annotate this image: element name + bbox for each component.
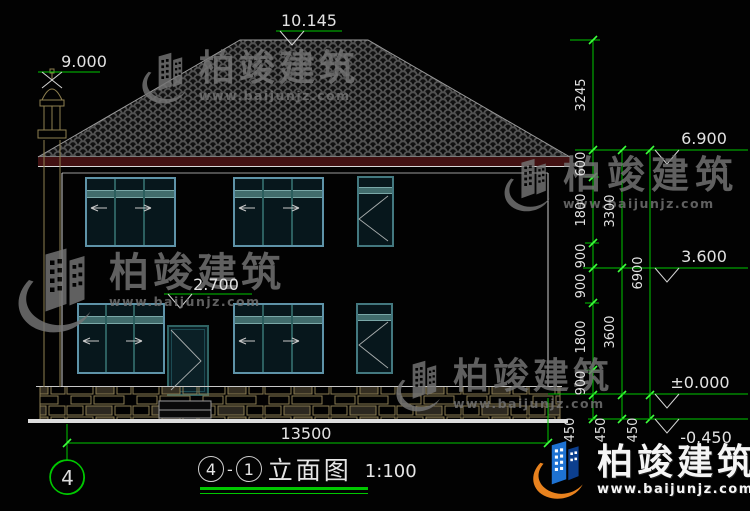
building-logo-icon <box>8 244 104 340</box>
level-eave: 6.900 <box>664 131 744 147</box>
window-transom <box>358 314 391 321</box>
window-2f-middle <box>233 177 324 247</box>
window-transom <box>235 190 322 198</box>
roof-fascia-band <box>38 156 570 167</box>
level-floor2: 3.600 <box>664 249 744 265</box>
window-1f-narrow <box>356 303 393 374</box>
title-dash: - <box>227 460 233 479</box>
building-logo-icon <box>526 438 592 504</box>
dim-label: 450 <box>594 400 608 460</box>
window-2f-narrow <box>357 176 394 247</box>
dim-total-width: 13500 <box>276 426 336 442</box>
brand-url: www.baijunjz.com <box>597 482 750 497</box>
dim-label: 450 <box>626 400 640 460</box>
dim-label: 450 <box>563 400 577 460</box>
grid-bubble-4: 4 <box>50 460 85 495</box>
window-mullion <box>291 305 293 372</box>
watermark: 柏竣建筑 www.baijunjz.com <box>498 156 739 216</box>
watermark-url: www.baijunjz.com <box>109 294 285 309</box>
watermark-url: www.baijunjz.com <box>453 396 613 411</box>
window-mullion <box>143 179 145 245</box>
ground-line <box>28 419 568 423</box>
drawing-title: 4 - 1 立面图 1:100 <box>198 452 417 486</box>
window-mullion <box>291 179 293 245</box>
title-scale: 1:100 <box>365 457 417 482</box>
dim-label: 3600 <box>603 302 617 362</box>
window-mullion <box>114 179 116 245</box>
building-logo-icon <box>136 50 194 108</box>
title-name: 立面图 <box>268 451 352 487</box>
watermark-name: 柏竣建筑 <box>199 50 359 88</box>
title-grid-start: 4 <box>198 456 224 482</box>
watermark-url: www.baijunjz.com <box>199 88 359 103</box>
window-2f-left <box>85 177 176 247</box>
title-underline-thick <box>200 487 368 490</box>
watermark-name: 柏竣建筑 <box>563 156 739 196</box>
dim-label: 6900 <box>631 243 645 303</box>
title-underline-thin <box>200 493 368 494</box>
level-ground: ±0.000 <box>656 375 744 391</box>
window-mullion <box>262 179 264 245</box>
building-logo-icon <box>498 156 558 216</box>
level-chimney: 9.000 <box>52 54 116 70</box>
title-grid-end: 1 <box>236 456 262 482</box>
dim-label: 3300 <box>603 181 617 241</box>
window-transom <box>359 187 392 194</box>
dim-label: 3245 <box>574 65 588 125</box>
watermark-name: 柏竣建筑 <box>453 358 613 396</box>
level-door-head: 2.700 <box>180 277 252 293</box>
watermark: 柏竣建筑 www.baijunjz.com <box>136 50 359 108</box>
brand-name: 柏竣建筑 <box>597 444 750 482</box>
level-grade: -0.450 <box>664 430 748 446</box>
level-ridge: 10.145 <box>276 13 342 29</box>
watermark-url: www.baijunjz.com <box>563 196 739 211</box>
window-transom <box>87 190 174 198</box>
elevation-drawing-canvas: 柏竣建筑 www.baijunjz.com 柏竣建筑 www.baijunjz.… <box>0 0 750 511</box>
building-logo-icon <box>390 358 448 416</box>
